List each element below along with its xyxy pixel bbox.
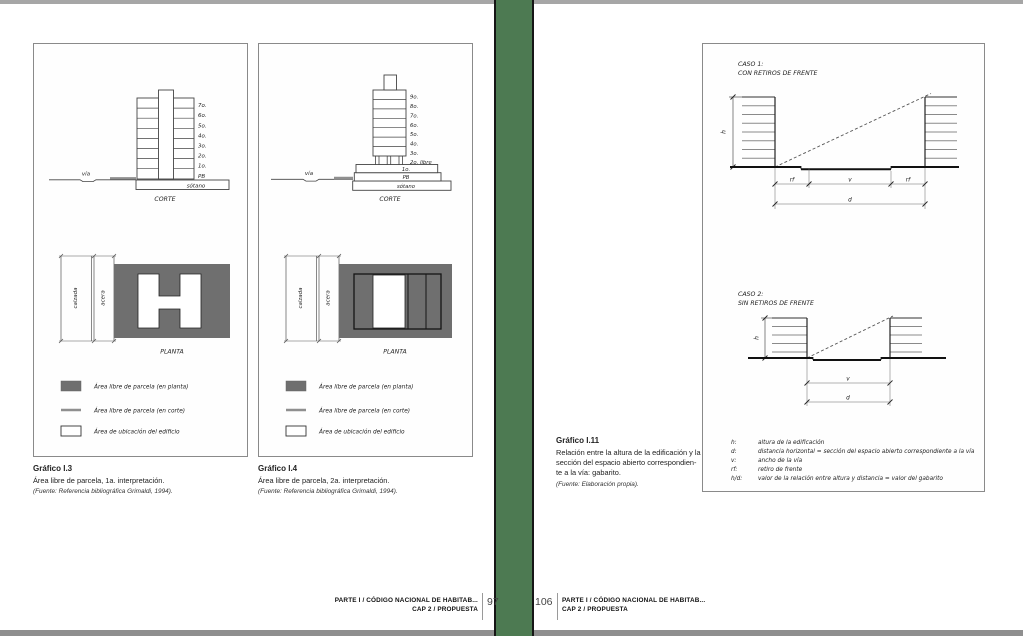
svg-text:h: h — [721, 130, 728, 134]
svg-text:v: v — [846, 377, 850, 383]
svg-text:3o.: 3o. — [198, 144, 207, 150]
road-label: calzada — [298, 287, 304, 309]
footer-rule-left — [482, 593, 483, 620]
svg-text:rf: rf — [906, 178, 911, 184]
street-label: vía — [82, 171, 91, 178]
svg-text:altura de la edificación: altura de la edificación — [758, 439, 825, 446]
legend-b: Área libre de parcela (en planta) Área l… — [286, 381, 413, 436]
svg-text:8o.: 8o. — [410, 104, 418, 110]
svg-text:h:: h: — [731, 440, 737, 446]
basement-label: sótano — [187, 183, 206, 190]
svg-text:ancho de la vía: ancho de la vía — [758, 457, 803, 464]
dimension-row-rf-v-rf: rf v rf — [773, 178, 928, 187]
street-strip-lines — [284, 254, 341, 343]
svg-text:sótano: sótano — [397, 183, 415, 190]
legend-swatch-planta — [286, 381, 306, 391]
sidewalk-label: acera — [326, 290, 332, 306]
svg-text:v: v — [848, 178, 852, 184]
corte-caption: CORTE — [379, 196, 400, 203]
caso-1-diagram: CASO 1: CON RETIROS DE FRENTE — [721, 61, 960, 209]
right-building-hatch — [890, 318, 922, 358]
page-number-97: 97 — [487, 596, 499, 608]
caption-text: Relación entre la altura de la edificaci… — [556, 448, 704, 478]
svg-text:PB: PB — [403, 175, 410, 181]
h-dimension: h — [754, 316, 773, 361]
ground-line — [730, 166, 959, 169]
svg-text:6o.: 6o. — [410, 123, 418, 129]
caption-title: Gráfico I.4 — [258, 464, 463, 473]
svg-text:4o.: 4o. — [410, 142, 418, 148]
figure-box-grafico-i4: 9o. 8o. 7o. 6o. 5o. 4o. 3o. 2o. libre 1o… — [258, 43, 473, 457]
planta-2-plan: calzada acera PLANTA — [284, 254, 452, 356]
svg-text:7o.: 7o. — [198, 103, 207, 109]
caption-source: (Fuente: Elaboración propia). — [556, 481, 704, 488]
caption-text: Área libre de parcela, 2a. interpretació… — [258, 476, 463, 485]
svg-text:5o.: 5o. — [198, 123, 207, 129]
caption-source: (Fuente: Referencia bibliográfica Grimal… — [258, 488, 463, 495]
dimension-row-v: v — [805, 377, 893, 386]
caption-title: Gráfico I.11 — [556, 436, 704, 445]
legend-swatch-building — [286, 426, 306, 436]
footer-left: PARTE I / CÓDIGO NACIONAL DE HABITAB... … — [280, 597, 478, 615]
svg-text:Área libre de parcela (en plan: Área libre de parcela (en planta) — [318, 384, 413, 391]
left-building-hatch — [742, 97, 775, 167]
grafico-i3-drawing: 7o. 6o. 5o. 4o. 3o. 2o. 1o. PB sótano ví… — [34, 44, 247, 456]
caption-grafico-i11: Gráfico I.11 Relación entre la altura de… — [556, 436, 704, 488]
right-building-hatch — [925, 97, 957, 167]
caso1-title-line1: CASO 1: — [738, 61, 763, 68]
corte-caption: CORTE — [154, 196, 175, 203]
book-gutter — [494, 0, 534, 636]
svg-text:9o.: 9o. — [410, 95, 418, 101]
svg-text:distancia horizontal = sección: distancia horizontal = sección del espac… — [758, 448, 975, 455]
book-spread: 7o. 6o. 5o. 4o. 3o. 2o. 1o. PB sótano ví… — [0, 0, 1023, 636]
svg-text:PB: PB — [198, 174, 205, 180]
ground-floor-slab — [354, 173, 441, 181]
left-building-hatch — [772, 318, 807, 358]
svg-text:6o.: 6o. — [198, 113, 207, 119]
footer-rule-right — [557, 593, 558, 620]
svg-text:1o.: 1o. — [402, 167, 410, 173]
svg-text:7o.: 7o. — [410, 113, 418, 119]
footer-line2: CAP 2 / PROPUESTA — [280, 606, 478, 615]
corte-2-section: 9o. 8o. 7o. 6o. 5o. 4o. 3o. 2o. libre 1o… — [271, 75, 451, 203]
caso-2-diagram: CASO 2: SIN RETIROS DE FRENTE — [738, 291, 946, 406]
grafico-i11-drawing: CASO 1: CON RETIROS DE FRENTE — [703, 44, 984, 491]
svg-text:Área de ubicación del edificio: Área de ubicación del edificio — [318, 429, 405, 436]
gabarito-dashed-line — [807, 316, 893, 358]
caso2-title-line1: CASO 2: — [738, 291, 763, 298]
svg-text:d: d — [846, 396, 850, 402]
grafico-i4-drawing: 9o. 8o. 7o. 6o. 5o. 4o. 3o. 2o. libre 1o… — [259, 44, 472, 456]
floor-labels: 7o. 6o. 5o. 4o. 3o. 2o. 1o. PB — [198, 103, 207, 180]
basement-slab — [136, 180, 229, 190]
svg-text:d:: d: — [731, 449, 737, 455]
svg-text:rf: rf — [790, 178, 795, 184]
caption-source: (Fuente: Referencia bibliográfica Grimal… — [33, 488, 238, 495]
svg-text:1o.: 1o. — [198, 164, 207, 170]
footer-line1: PARTE I / CÓDIGO NACIONAL DE HABITAB... — [280, 597, 478, 606]
road-label: calzada — [73, 287, 79, 309]
svg-text:retiro de frente: retiro de frente — [758, 467, 803, 473]
abbreviation-legend: h:altura de la edificación d:distancia h… — [731, 439, 975, 482]
ground-line — [271, 179, 353, 181]
pilotis-columns — [376, 156, 403, 165]
footer-line2: CAP 2 / PROPUESTA — [562, 606, 792, 615]
svg-text:Área libre de parcela (en plan: Área libre de parcela (en planta) — [93, 384, 188, 391]
svg-text:Área de ubicación del edificio: Área de ubicación del edificio — [93, 429, 180, 436]
legend-swatch-planta — [61, 381, 81, 391]
legend-swatch-building — [61, 426, 81, 436]
svg-text:3o.: 3o. — [410, 151, 418, 157]
elevator-core — [159, 90, 174, 179]
svg-text:h/d:: h/d: — [731, 476, 742, 482]
caption-text: Área libre de parcela, 1a. interpretació… — [33, 476, 238, 485]
svg-text:d: d — [848, 198, 852, 204]
building-footprint-rect — [373, 275, 405, 328]
street-strip-lines — [59, 254, 116, 343]
elevator-core — [384, 75, 397, 90]
caption-title: Gráfico I.3 — [33, 464, 238, 473]
street-label: vía — [305, 170, 314, 177]
gabarito-dashed-line — [775, 94, 931, 168]
sidewalk-label: acera — [101, 290, 107, 306]
svg-text:rf:: rf: — [731, 467, 737, 473]
svg-text:v:: v: — [731, 458, 736, 464]
ground-line — [49, 180, 136, 182]
caption-grafico-i4: Gráfico I.4 Área libre de parcela, 2a. i… — [258, 464, 463, 495]
h-dimension: h — [721, 95, 743, 170]
footer-line1: PARTE I / CÓDIGO NACIONAL DE HABITAB... — [562, 597, 792, 606]
svg-text:2o.: 2o. — [198, 154, 207, 160]
dimension-row-d: d — [805, 396, 893, 405]
planta-1-plan: calzada acera PLANTA — [59, 254, 230, 356]
figure-box-grafico-i11: CASO 1: CON RETIROS DE FRENTE — [702, 43, 985, 492]
tower-outline — [373, 90, 406, 156]
planta-caption: PLANTA — [383, 349, 406, 356]
footer-right: PARTE I / CÓDIGO NACIONAL DE HABITAB... … — [562, 597, 792, 615]
svg-text:5o.: 5o. — [410, 132, 418, 138]
corte-1-section: 7o. 6o. 5o. 4o. 3o. 2o. 1o. PB sótano ví… — [49, 90, 229, 203]
legend-a: Área libre de parcela (en planta) Área l… — [61, 381, 188, 436]
svg-text:Área libre de parcela (en cort: Área libre de parcela (en corte) — [93, 408, 185, 415]
figure-box-grafico-i3: 7o. 6o. 5o. 4o. 3o. 2o. 1o. PB sótano ví… — [33, 43, 248, 457]
planta-caption: PLANTA — [160, 349, 183, 356]
caso2-title-line2: SIN RETIROS DE FRENTE — [738, 300, 814, 307]
svg-text:valor de la relación entre alt: valor de la relación entre altura y dist… — [758, 475, 943, 482]
svg-text:4o.: 4o. — [198, 133, 207, 139]
dimension-row-d: d — [773, 198, 928, 207]
caso1-title-line2: CON RETIROS DE FRENTE — [738, 70, 817, 77]
caption-grafico-i3: Gráfico I.3 Área libre de parcela, 1a. i… — [33, 464, 238, 495]
ground-line — [748, 357, 946, 360]
svg-text:h: h — [754, 336, 761, 340]
svg-text:2o. libre: 2o. libre — [410, 160, 432, 166]
page-number-106: 106 — [535, 596, 553, 608]
svg-text:Área libre de parcela (en cort: Área libre de parcela (en corte) — [318, 408, 410, 415]
